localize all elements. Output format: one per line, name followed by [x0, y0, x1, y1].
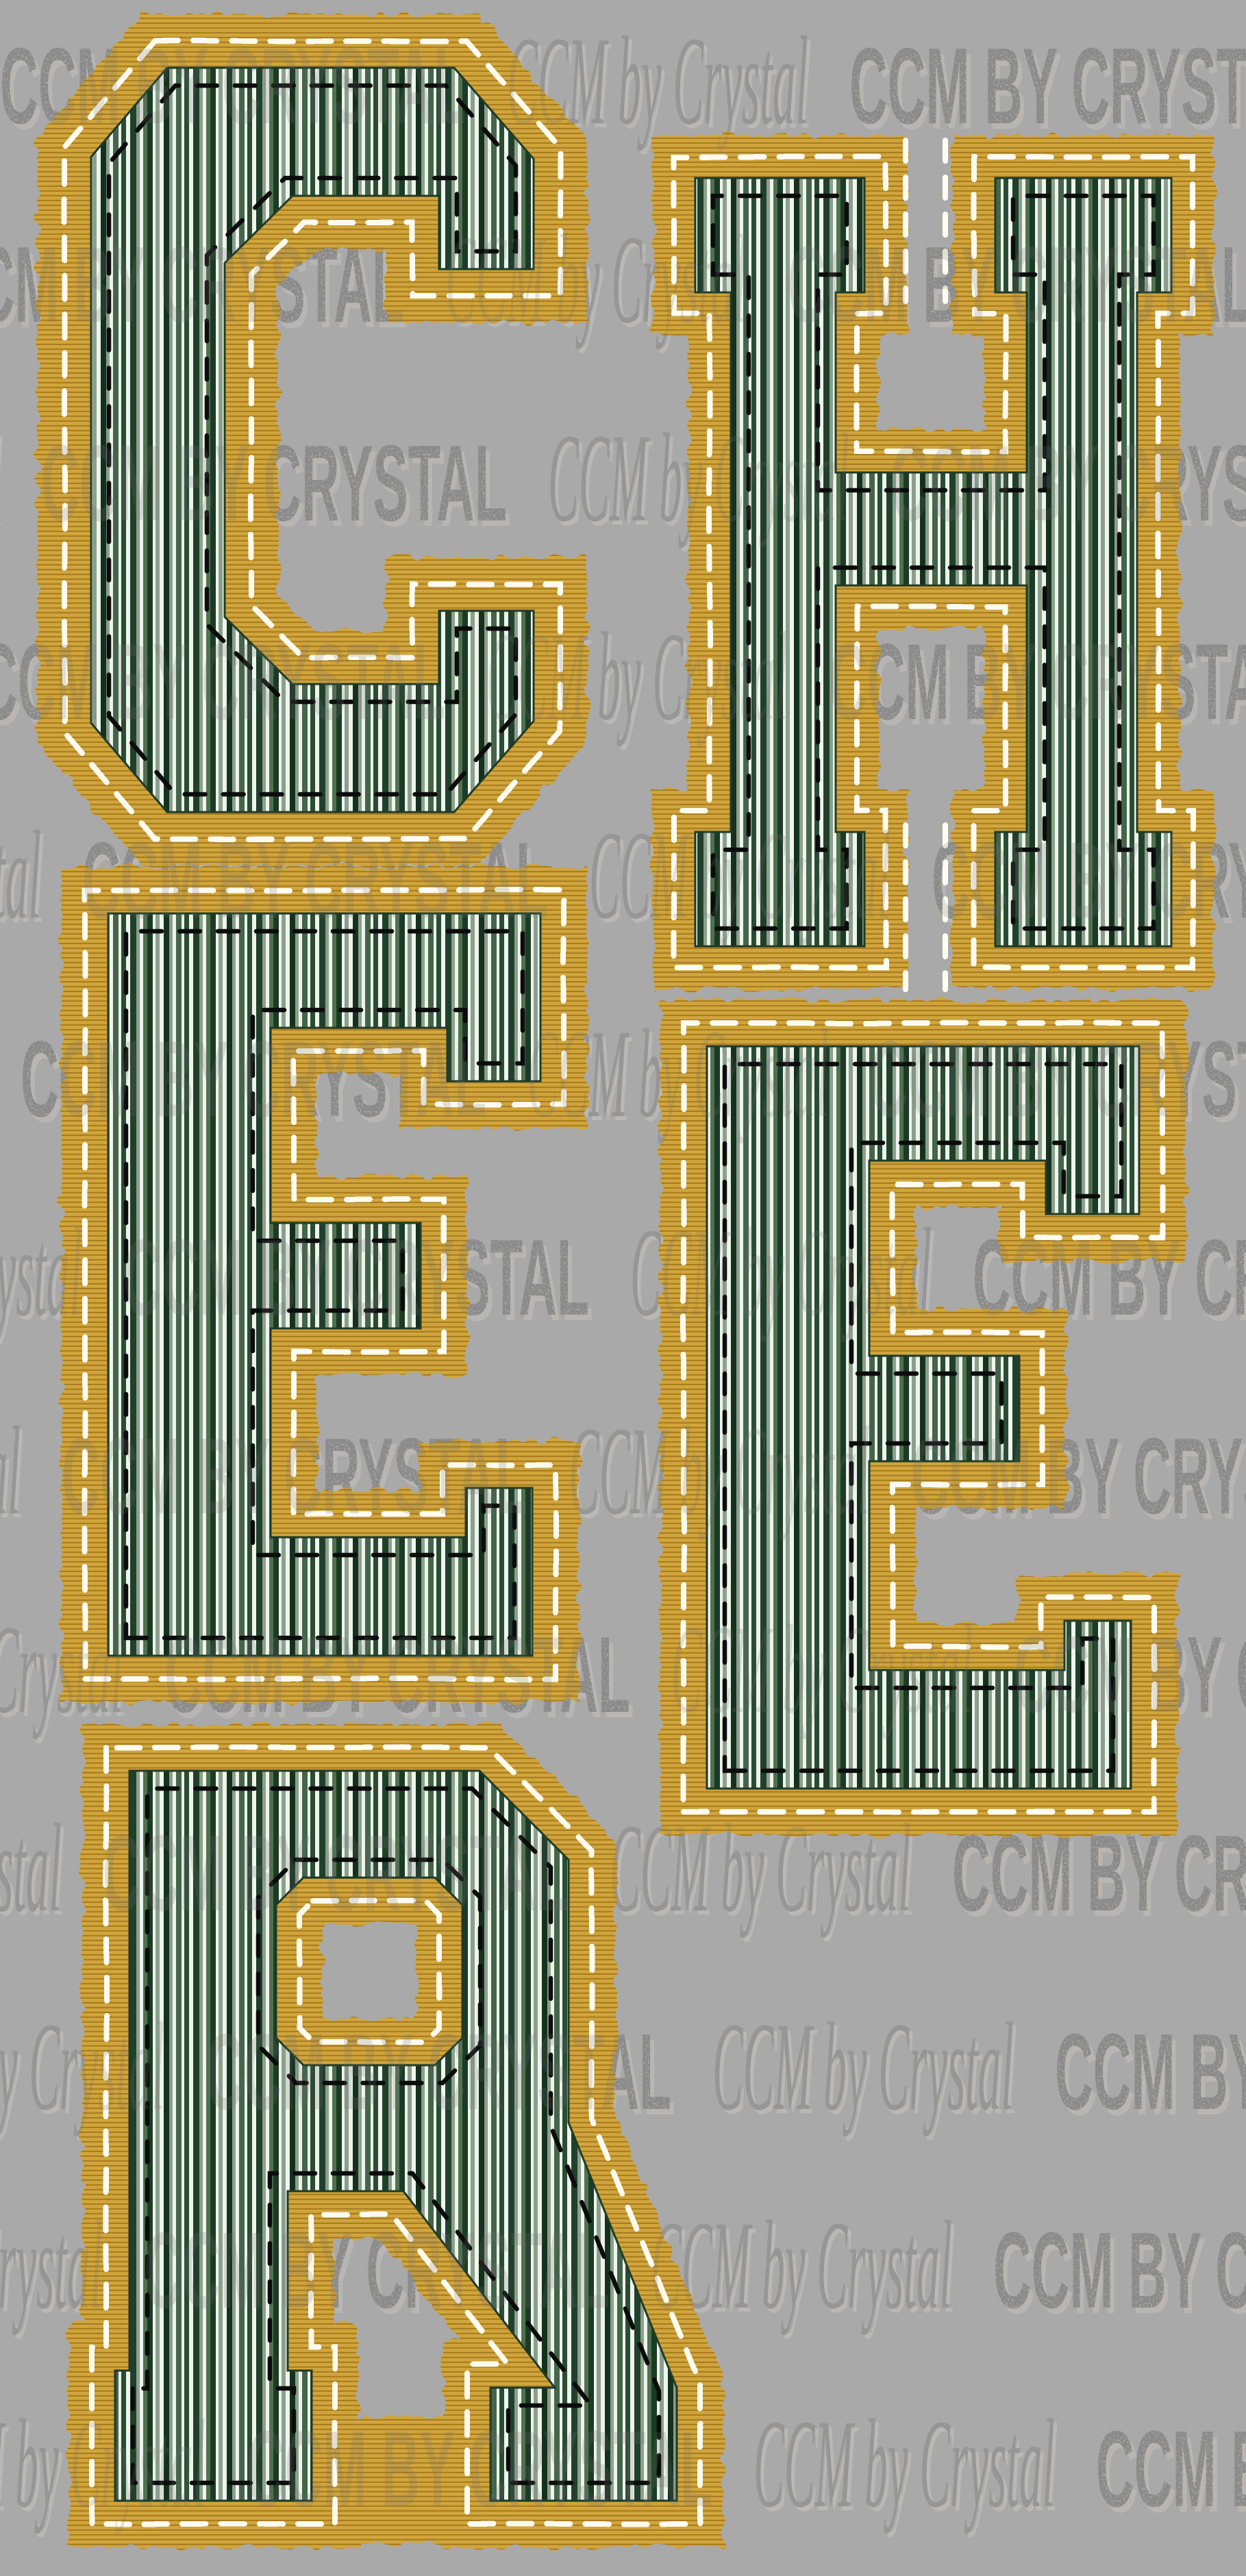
svg-text:CCM BY CRYSTAL: CCM BY CRYSTAL — [164, 1615, 630, 1735]
svg-text:CCM BY CRYSTAL: CCM BY CRYSTAL — [1096, 2409, 1246, 2529]
svg-text:CCM BY CRYSTAL: CCM BY CRYSTAL — [993, 2210, 1246, 2331]
svg-text:CCM BY CRYSTAL: CCM BY CRYSTAL — [21, 1019, 486, 1139]
svg-text:CCM BY CRYSTAL: CCM BY CRYSTAL — [82, 820, 548, 941]
svg-text:CCM by Crystal: CCM by Crystal — [0, 2195, 103, 2336]
svg-text:CCM BY CRYSTAL: CCM BY CRYSTAL — [890, 423, 1246, 544]
svg-text:CCM BY CRYSTAL: CCM BY CRYSTAL — [205, 2012, 671, 2132]
svg-text:CCM BY CRYSTAL: CCM BY CRYSTAL — [1055, 2012, 1246, 2132]
svg-text:CCM BY CRYSTAL: CCM BY CRYSTAL — [849, 26, 1246, 147]
svg-text:CCM BY CRYSTAL: CCM BY CRYSTAL — [0, 26, 466, 147]
svg-text:CCM by Crystal: CCM by Crystal — [0, 1798, 62, 1939]
svg-text:CCM BY CRYSTAL: CCM BY CRYSTAL — [247, 2409, 712, 2529]
svg-text:CCM by Crystal: CCM by Crystal — [0, 1401, 21, 1541]
svg-text:CCM BY CRYSTAL: CCM BY CRYSTAL — [870, 1019, 1246, 1139]
svg-text:CCM BY CRYSTAL: CCM BY CRYSTAL — [0, 622, 445, 742]
svg-text:CCM by Crystal: CCM by Crystal — [753, 2394, 1055, 2534]
svg-text:CCM by Crystal: CCM by Crystal — [630, 1202, 932, 1343]
svg-text:CCM by Crystal: CCM by Crystal — [610, 1798, 911, 1939]
svg-text:CCM by Crystal: CCM by Crystal — [0, 1202, 82, 1343]
svg-text:CCM by Crystal: CCM by Crystal — [651, 2195, 952, 2336]
svg-text:CCM BY CRYSTAL: CCM BY CRYSTAL — [0, 225, 404, 345]
svg-text:CCM BY CRYSTAL: CCM BY CRYSTAL — [144, 2210, 610, 2331]
svg-text:CCM BY CRYSTAL: CCM BY CRYSTAL — [41, 423, 507, 544]
svg-text:CCM by Crystal: CCM by Crystal — [527, 1004, 829, 1144]
svg-text:CCM by Crystal: CCM by Crystal — [0, 1600, 123, 1740]
svg-text:CCM by Crystal: CCM by Crystal — [0, 1997, 164, 2137]
svg-text:CCM BY CRYSTAL: CCM BY CRYSTAL — [973, 1217, 1246, 1338]
svg-text:CCM BY CRYSTAL: CCM BY CRYSTAL — [1014, 1615, 1246, 1735]
svg-text:CCM BY CRYSTAL: CCM BY CRYSTAL — [911, 1416, 1246, 1537]
svg-text:CCM BY CRYSTAL: CCM BY CRYSTAL — [103, 1813, 569, 1934]
svg-text:CCM BY CRYSTAL: CCM BY CRYSTAL — [932, 820, 1246, 941]
svg-text:CCM by Crystal: CCM by Crystal — [712, 1997, 1014, 2137]
svg-text:CCM by Crystal: CCM by Crystal — [569, 1401, 870, 1541]
svg-text:CCM by Crystal: CCM by Crystal — [445, 210, 747, 350]
svg-text:CCM BY CRYSTAL: CCM BY CRYSTAL — [788, 225, 1246, 345]
svg-text:CCM BY CRYSTAL: CCM BY CRYSTAL — [62, 1416, 527, 1537]
svg-text:CCM by Crystal: CCM by Crystal — [548, 408, 849, 548]
svg-text:CCM by Crystal: CCM by Crystal — [589, 805, 890, 946]
svg-text:CCM by Crystal: CCM by Crystal — [671, 1600, 973, 1740]
svg-text:CCM by Crystal: CCM by Crystal — [0, 805, 41, 946]
svg-text:CCM by Crystal: CCM by Crystal — [486, 607, 788, 747]
svg-text:CCM BY CRYSTAL: CCM BY CRYSTAL — [123, 1217, 589, 1338]
svg-text:CCM BY CRYSTAL: CCM BY CRYSTAL — [952, 1813, 1246, 1934]
svg-text:CCM by Crystal: CCM by Crystal — [507, 11, 808, 151]
svg-text:CCM BY CRYSTAL: CCM BY CRYSTAL — [829, 622, 1246, 742]
svg-text:CCM by Crystal: CCM by Crystal — [0, 2394, 205, 2534]
